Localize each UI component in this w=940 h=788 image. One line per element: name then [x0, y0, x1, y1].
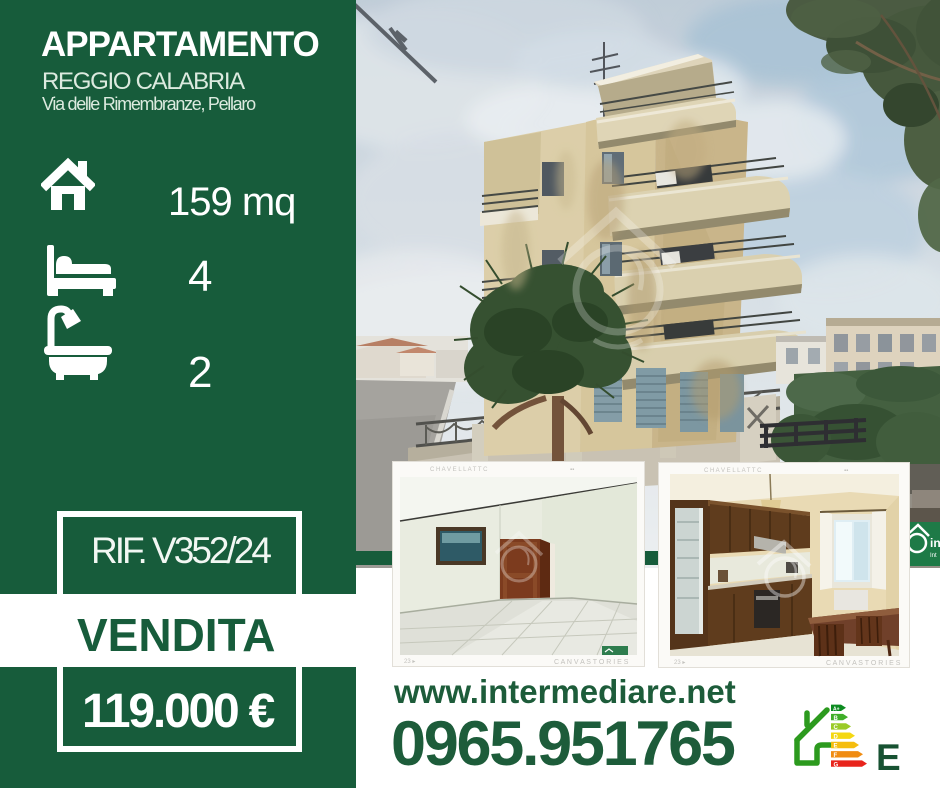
svg-text:C H A V E L L A T T C: C H A V E L L A T T C [704, 468, 762, 474]
svg-text:▪▪: ▪▪ [570, 467, 574, 473]
svg-text:Int: Int [930, 553, 937, 559]
svg-text:23 ▸: 23 ▸ [404, 659, 415, 665]
svg-text:F: F [834, 753, 838, 759]
svg-text:B: B [834, 716, 839, 722]
svg-text:A+: A+ [833, 706, 840, 712]
svg-text:G: G [834, 762, 839, 768]
svg-text:▪▪: ▪▪ [844, 468, 848, 474]
svg-text:C A N V A S T O R I E S: C A N V A S T O R I E S [826, 660, 901, 667]
svg-text:E: E [834, 744, 838, 750]
svg-text:C A N V A S T O R I E S: C A N V A S T O R I E S [554, 659, 629, 666]
svg-text:C: C [834, 725, 839, 731]
svg-text:C H A V E L L A T T C: C H A V E L L A T T C [430, 467, 488, 473]
svg-text:23 ▸: 23 ▸ [674, 660, 685, 666]
svg-text:in: in [930, 536, 940, 550]
svg-text:D: D [834, 734, 839, 740]
